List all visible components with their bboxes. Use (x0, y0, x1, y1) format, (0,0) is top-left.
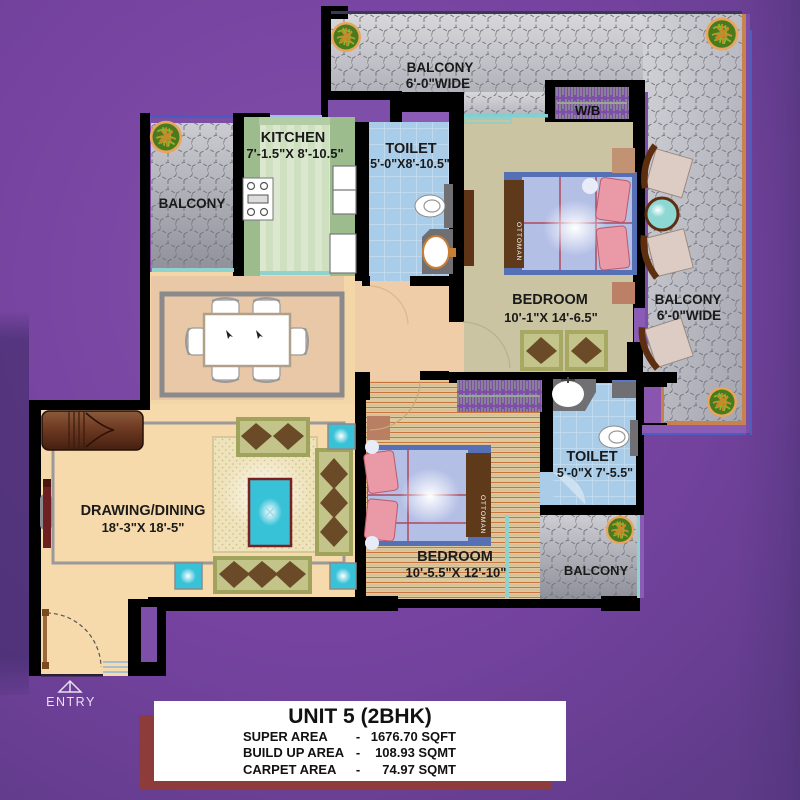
svg-text:5'-0"X8'-10.5": 5'-0"X8'-10.5" (370, 157, 450, 171)
svg-text:UNIT 5 (2BHK): UNIT 5 (2BHK) (288, 705, 432, 728)
svg-text:TOILET: TOILET (566, 449, 617, 465)
svg-text:7'-1.5"X 8'-10.5": 7'-1.5"X 8'-10.5" (246, 146, 343, 161)
svg-text:6'-0"WIDE: 6'-0"WIDE (406, 76, 470, 91)
svg-text:74.97 SQMT: 74.97 SQMT (382, 762, 456, 777)
svg-text:SUPER AREA: SUPER AREA (243, 729, 328, 744)
svg-text:W/B: W/B (575, 103, 600, 118)
svg-text:CARPET AREA: CARPET AREA (243, 762, 337, 777)
svg-text:10'-1"X 14'-6.5": 10'-1"X 14'-6.5" (504, 310, 598, 325)
svg-text:1676.70 SQFT: 1676.70 SQFT (371, 729, 456, 744)
svg-text:BALCONY: BALCONY (564, 563, 629, 578)
svg-text:-: - (356, 729, 360, 744)
svg-text:-: - (356, 745, 360, 760)
svg-text:KITCHEN: KITCHEN (261, 130, 325, 146)
svg-text:-: - (356, 762, 360, 777)
svg-text:BEDROOM: BEDROOM (417, 549, 493, 565)
svg-text:OTTOMAN: OTTOMAN (479, 495, 486, 534)
svg-text:TOILET: TOILET (385, 141, 436, 157)
svg-text:10'-5.5"X 12'-10": 10'-5.5"X 12'-10" (406, 565, 507, 580)
svg-text:108.93 SQMT: 108.93 SQMT (375, 745, 456, 760)
svg-text:BALCONY: BALCONY (407, 60, 474, 75)
svg-text:BUILD UP AREA: BUILD UP AREA (243, 745, 345, 760)
svg-text:DRAWING/DINING: DRAWING/DINING (81, 503, 206, 519)
svg-text:18'-3"X 18'-5": 18'-3"X 18'-5" (102, 520, 185, 535)
svg-text:BALCONY: BALCONY (159, 196, 226, 211)
svg-text:BALCONY: BALCONY (655, 292, 722, 307)
svg-text:6'-0"WIDE: 6'-0"WIDE (657, 308, 721, 323)
svg-text:5'-0"X 7'-5.5": 5'-0"X 7'-5.5" (557, 466, 633, 480)
svg-text:OTTOMAN: OTTOMAN (515, 222, 522, 261)
svg-text:ENTRY: ENTRY (46, 695, 96, 709)
svg-text:BEDROOM: BEDROOM (512, 292, 588, 308)
